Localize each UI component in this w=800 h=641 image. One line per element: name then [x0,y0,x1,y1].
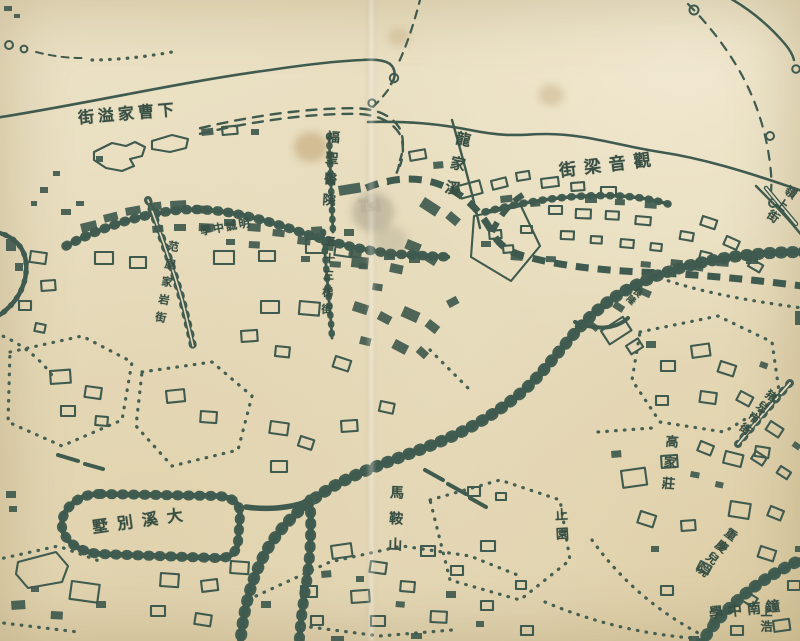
fanjiayan-street-label: 范屋家岩街 [153,240,179,331]
zhongnan-school-label: 學中南鐘 [708,599,785,621]
shanghao-label: 上浩 [760,605,772,635]
labels-layer: 街溢家曹下福聖醫院龍家溪街梁音觀學中誠明范屋家岩街五十三梯街長隆猪兒市街嶺上街高… [0,0,800,641]
longjiaxi-label: 龍家溪 [441,130,471,206]
guanyinliang-street-label: 街梁音觀 [558,151,659,180]
daxi-villa-label: 墅別溪大 [91,506,192,536]
map-canvas: Tsi 街溢家曹下福聖醫院龍家溪街梁音觀學中誠明范屋家岩街五十三梯街長隆猪兒市街… [0,0,800,641]
wushisanti-street-label: 五十三梯街 [320,235,335,320]
xiacaojiayi-street-label: 街溢家曹下 [77,102,178,127]
zhuershi-street-label: 猪兒市街 [735,388,778,439]
mingcheng-school-label: 學中誠明 [199,217,252,237]
fusheng-hospital-label: 福聖醫院 [320,130,339,215]
chongqing-eryuan-label: 重慶兒院 [693,526,739,581]
maanshan-label: 馬鞍山 [387,485,404,563]
gaojiazhuang-label: 高家莊 [659,434,677,498]
tsi-watermark: Tsi [358,196,382,217]
zhiyuan-label: 止園 [553,508,568,547]
changlong-label: 長隆 [623,285,643,306]
paper-fold-crease [366,0,376,641]
lingshang-street-label: 嶺上街 [763,183,799,226]
